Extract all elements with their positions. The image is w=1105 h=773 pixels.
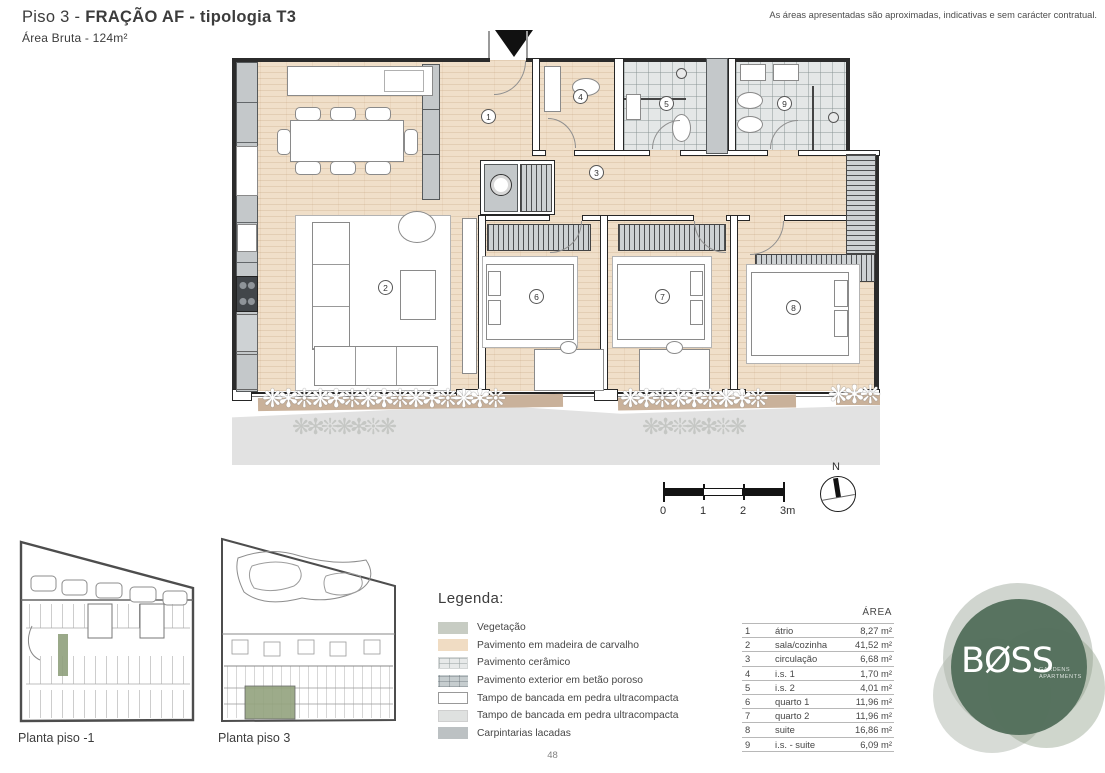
wall [478,215,550,221]
exterior-patch [848,58,880,150]
siteplan-basement: Planta piso -1 [18,538,198,740]
sofa [312,222,350,350]
row-area: 1,70 m² [834,668,894,679]
wall [730,215,738,391]
washbasin [626,94,641,120]
dining-table [290,120,404,162]
table-row: 1átrio8,27 m² [742,623,894,637]
wall [728,58,736,154]
row-num: 5 [742,682,775,693]
row-name: i.s. 2 [775,682,834,693]
row-num: 2 [742,639,775,650]
legend-item: Tampo de bancada em pedra ultracompacta [438,707,708,725]
kitchen-lower-cabinet [236,354,258,390]
row-area: 8,27 m² [834,625,894,636]
kitchen-sink [237,224,257,252]
legend-item: Vegetação [438,619,708,637]
row-area: 11,96 m² [834,710,894,721]
chair [365,161,391,175]
legend-item-label: Tampo de bancada em pedra ultracompacta [477,710,678,721]
toilet [737,92,763,109]
chair [330,161,356,175]
disclaimer-text: As áreas apresentadas são aproximadas, i… [769,10,1097,20]
row-area: 4,01 m² [834,682,894,693]
legend-item-label: Pavimento em madeira de carvalho [477,640,639,651]
scale-label: 2 [740,505,746,517]
chair [295,161,321,175]
island-sink [384,70,424,92]
legend-item: Pavimento em madeira de carvalho [438,637,708,655]
table-row: 4i.s. 11,70 m² [742,666,894,680]
row-area: 6,09 m² [834,739,894,750]
room-number-quarto1: 6 [529,289,544,304]
scale-segment [743,488,783,496]
row-name: quarto 1 [775,696,834,707]
room-number-is2: 5 [659,96,674,111]
washbasin [544,66,561,112]
scale-bar: 0 1 2 3m [663,481,803,519]
pillow [834,310,848,337]
table-row: 2sala/cozinha41,52 m² [742,637,894,651]
gross-area-subtitle: Área Bruta - 124m² [22,31,128,45]
shower-head-icon [828,112,839,123]
legend-title: Legenda: [438,590,708,607]
legend-item: Carpintarias lacadas [438,725,708,743]
page-title: Piso 3 - FRAÇÃO AF - tipologia T3 [22,8,296,27]
armchair [398,211,436,243]
technical-duct [706,58,728,154]
page-title-bold: FRAÇÃO AF - tipologia T3 [85,8,296,26]
area-table: ÁREA 1átrio8,27 m² 2sala/cozinha41,52 m²… [742,607,894,752]
chair [404,129,418,155]
vase [560,341,577,354]
wall [582,215,694,221]
legend-item: Pavimento cerâmico [438,654,708,672]
scale-segment [703,488,743,496]
chair [330,107,356,121]
page-number: 48 [0,750,1105,761]
chair [295,107,321,121]
entrance-recess-line [526,31,528,58]
carpentry-swatch [438,727,468,739]
scale-label: 1 [700,505,706,517]
shower-head-icon [676,68,687,79]
chair [277,129,291,155]
row-name: i.s. - suite [775,739,834,750]
row-name: átrio [775,625,834,636]
table-row: 3circulação6,68 m² [742,651,894,665]
laundry-rail-closet [520,164,552,212]
row-name: circulação [775,653,834,664]
pillow [488,271,501,296]
chair [365,107,391,121]
row-area: 6,68 m² [834,653,894,664]
logo-tagline-line2: APARTMENTS [1039,674,1082,681]
room-number-quarto2: 7 [655,289,670,304]
wall [532,58,540,154]
entrance-recess-line [488,31,490,58]
table-row: 8suite16,86 m² [742,722,894,736]
scale-segment [663,488,703,496]
legend-item-label: Vegetação [477,622,526,633]
legend-item: Pavimento exterior em betão poroso [438,672,708,690]
siteplan-floor3-label: Planta piso 3 [218,731,400,745]
brochure-page: Piso 3 - FRAÇÃO AF - tipologia T3 Área B… [0,0,1105,773]
row-area: 16,86 m² [834,724,894,735]
scale-label: 3m [780,505,795,517]
row-name: quarto 2 [775,710,834,721]
vegetation-shadow: ❋✻❊❋✻❊❋ [292,414,393,440]
wall [526,58,850,62]
washing-machine-icon [490,174,512,196]
logo-tagline: GARDENS APARTMENTS [1039,667,1082,681]
legend-item-label: Carpintarias lacadas [477,728,571,739]
pillow [488,300,501,325]
vegetation: ❋✻❊❋✻❊❋✻❊ [620,384,764,414]
row-num: 9 [742,739,775,750]
room-number-atrio: 1 [481,109,496,124]
room-number-sala: 2 [378,280,393,295]
row-area: 41,52 m² [834,639,894,650]
wardrobe-suite-vertical [846,154,876,254]
counter-gray-swatch [438,710,468,722]
logo-tagline-line1: GARDENS [1039,667,1082,674]
scale-label: 0 [660,505,666,517]
concrete-floor-swatch [438,675,468,687]
north-label: N [832,461,840,473]
wood-floor-swatch [438,639,468,651]
washbasin [740,64,766,81]
row-name: sala/cozinha [775,639,834,650]
wall [574,150,650,156]
kitchen-counter [236,146,258,196]
pillow [834,280,848,307]
pillow [690,300,703,325]
vase [666,341,683,354]
coffee-table [400,270,436,320]
legend-item-label: Pavimento cerâmico [477,657,570,668]
row-num: 4 [742,668,775,679]
row-num: 3 [742,653,775,664]
siteplan-basement-label: Planta piso -1 [18,731,198,745]
tv-unit [462,218,477,374]
kitchen-hob [236,276,258,312]
legend-item-label: Pavimento exterior em betão poroso [477,675,643,686]
room-number-circulacao: 3 [589,165,604,180]
vegetation: ❋✻❊ [828,380,876,410]
brand-logo: BØSS GARDENS APARTMENTS [933,583,1105,755]
siteplan-floor3: Planta piso 3 [218,536,400,740]
table-row: 7quarto 211,96 m² [742,708,894,722]
vegetation-shadow: ❋✻❊❋✻❊❋ [642,414,743,440]
wall [232,58,490,62]
siteplan-floor3-drawing [218,536,398,724]
row-num: 7 [742,710,775,721]
scale-tick [783,482,785,502]
sofa-chaise [314,346,438,386]
table-row: 6quarto 111,96 m² [742,694,894,708]
washbasin [773,64,799,81]
north-arrow: N [816,461,864,519]
desk [534,349,604,391]
row-name: suite [775,724,834,735]
legend-item: Tampo de bancada em pedra ultracompacta [438,689,708,707]
legend-item-label: Tampo de bancada em pedra ultracompacta [477,693,678,704]
row-num: 1 [742,625,775,636]
siteplan-basement-drawing [18,538,196,724]
room-number-suite: 8 [786,300,801,315]
wall [532,150,546,156]
row-num: 6 [742,696,775,707]
vegetation-swatch [438,622,468,634]
kitchen-lower-cabinet [236,314,258,352]
row-area: 11,96 m² [834,696,894,707]
counter-white-swatch [438,692,468,704]
legend: Legenda: Vegetação Pavimento em madeira … [438,590,708,742]
bidet [737,116,763,133]
row-name: i.s. 1 [775,668,834,679]
area-table-header: ÁREA [742,607,894,623]
table-row: 5i.s. 24,01 m² [742,680,894,694]
pillow [690,271,703,296]
row-num: 8 [742,724,775,735]
shower-screen [812,86,814,150]
vegetation: ❋✻❊❋✻❊❋✻❊❋✻❊❋✻❊ [262,384,501,414]
wall [846,58,850,154]
floor-plan: 1 2 3 4 5 6 7 8 9 ❋✻❊❋✻❊❋ ❋✻❊❋✻❊❋ ❋✻❊❋✻❊… [232,58,880,465]
room-number-is-suite: 9 [777,96,792,111]
ceramic-floor-swatch [438,657,468,669]
wall [614,58,624,154]
room-number-is1: 4 [573,89,588,104]
page-title-prefix: Piso 3 - [22,8,85,26]
